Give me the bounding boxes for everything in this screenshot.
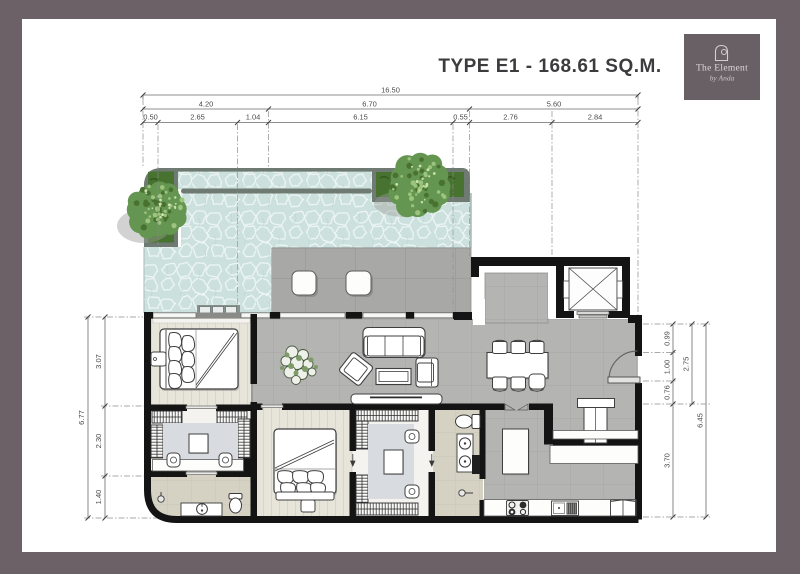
svg-text:TYPE E1 - 168.61 SQ.M.: TYPE E1 - 168.61 SQ.M. — [438, 56, 661, 77]
svg-text:3.07: 3.07 — [94, 354, 103, 369]
svg-text:2.76: 2.76 — [503, 113, 518, 122]
svg-text:2.30: 2.30 — [94, 434, 103, 449]
svg-text:6.45: 6.45 — [696, 413, 705, 428]
svg-text:4.20: 4.20 — [199, 100, 214, 109]
svg-text:2.75: 2.75 — [682, 357, 691, 372]
svg-text:2.65: 2.65 — [190, 113, 205, 122]
svg-text:by Anda: by Anda — [710, 74, 735, 83]
svg-text:6.70: 6.70 — [362, 100, 377, 109]
svg-text:1.00: 1.00 — [663, 360, 672, 375]
svg-text:0.50: 0.50 — [143, 113, 158, 122]
svg-text:1.40: 1.40 — [94, 490, 103, 505]
svg-text:6.15: 6.15 — [353, 113, 368, 122]
svg-text:16.50: 16.50 — [381, 86, 400, 95]
svg-text:2.84: 2.84 — [588, 113, 603, 122]
svg-text:3.70: 3.70 — [663, 453, 672, 468]
svg-text:0.99: 0.99 — [663, 331, 672, 346]
svg-text:1.04: 1.04 — [246, 113, 261, 122]
svg-text:0.55: 0.55 — [453, 113, 468, 122]
svg-text:0.76: 0.76 — [663, 385, 672, 400]
svg-text:5.60: 5.60 — [547, 100, 562, 109]
svg-text:The Element: The Element — [696, 64, 748, 74]
svg-text:6.77: 6.77 — [77, 410, 86, 425]
